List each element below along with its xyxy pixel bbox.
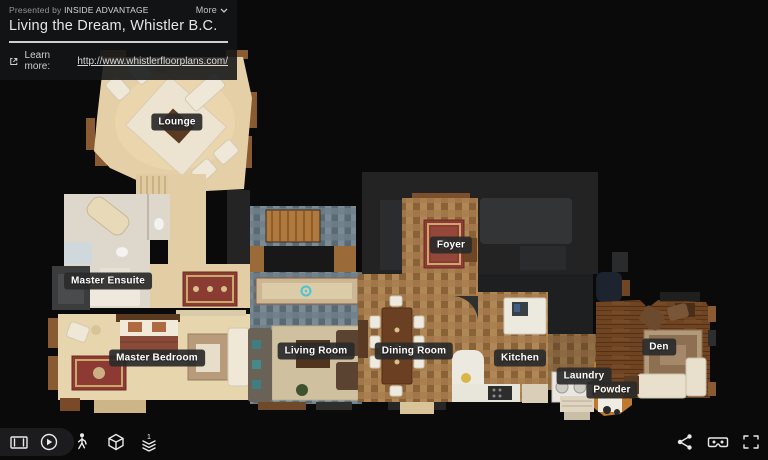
entry-steps — [560, 396, 594, 420]
fullscreen-icon — [742, 434, 760, 450]
room-label-powder[interactable]: Powder — [586, 382, 637, 399]
room-label-dining-room[interactable]: Dining Room — [375, 343, 453, 360]
highlight-reel-icon — [9, 433, 29, 451]
share-icon — [676, 433, 694, 451]
chevron-down-icon — [220, 8, 228, 13]
play-icon — [39, 432, 59, 452]
room-label-lounge[interactable]: Lounge — [151, 114, 202, 131]
tour-title: Living the Dream, Whistler B.C. — [9, 18, 228, 34]
learn-more-link[interactable]: http://www.whistlerfloorplans.com/ — [77, 56, 228, 67]
external-link-icon — [9, 56, 19, 67]
dollhouse-view-button[interactable] — [103, 429, 129, 455]
dollhouse-icon — [106, 432, 126, 452]
floorplan-view-button[interactable]: 1 — [136, 429, 162, 455]
room-label-master-ensuite[interactable]: Master Ensuite — [64, 273, 152, 290]
room-label-living-room[interactable]: Living Room — [278, 343, 355, 360]
share-button[interactable] — [672, 429, 698, 455]
play-tour-button[interactable] — [36, 429, 62, 455]
room-label-foyer[interactable]: Foyer — [430, 237, 472, 254]
info-panel: Presented by INSIDE ADVANTAGE More Livin… — [0, 0, 237, 80]
walk-icon — [73, 432, 91, 452]
room-foyer — [402, 193, 478, 274]
vr-mode-button[interactable] — [705, 429, 731, 455]
fullscreen-button[interactable] — [738, 429, 764, 455]
learn-more-label: Learn more: — [25, 50, 72, 72]
room-label-kitchen[interactable]: Kitchen — [494, 350, 546, 367]
room-living-room — [248, 206, 362, 410]
room-label-master-bedroom[interactable]: Master Bedroom — [109, 350, 205, 367]
room-label-den[interactable]: Den — [642, 339, 676, 356]
more-label: More — [196, 5, 217, 15]
tour-viewer: Lounge Master Ensuite Master Bedroom Liv… — [0, 0, 768, 460]
presented-by-label: Presented by — [9, 5, 62, 15]
header-divider — [9, 41, 228, 43]
presenter-name: INSIDE ADVANTAGE — [64, 5, 149, 15]
floorplan-icon: 1 — [139, 432, 159, 452]
walk-mode-button[interactable] — [69, 429, 95, 455]
vr-icon — [707, 433, 729, 451]
more-button[interactable]: More — [196, 5, 228, 15]
floor-number-badge: 1 — [147, 432, 151, 441]
highlight-reel-button[interactable] — [6, 429, 32, 455]
bottom-toolbar: 1 — [0, 424, 768, 460]
presented-by: Presented by INSIDE ADVANTAGE — [9, 5, 149, 15]
